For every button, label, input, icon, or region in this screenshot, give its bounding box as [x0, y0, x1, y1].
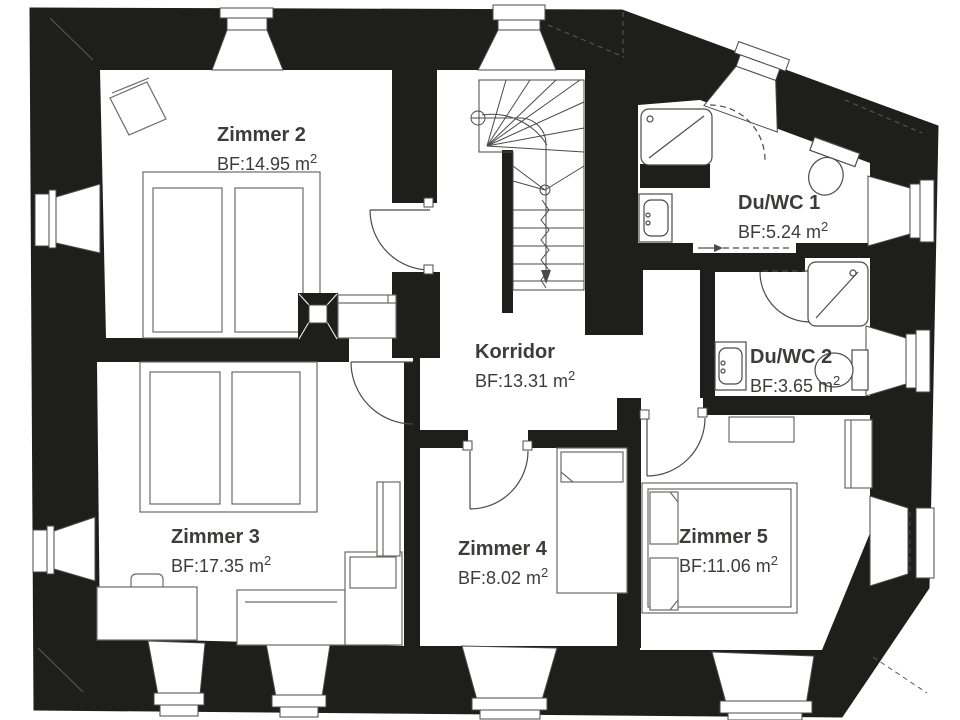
- shower-duwc2: [808, 262, 868, 326]
- window-bottom-2: [266, 643, 330, 717]
- room-name-zimmer5: Zimmer 5: [679, 526, 778, 549]
- room-area-duwc1: BF:5.24 m2: [738, 220, 828, 243]
- corner-line-bottom-right: [873, 657, 927, 693]
- room-label-zimmer2: Zimmer 2 BF:14.95 m2: [217, 124, 317, 175]
- shower-duwc1: [641, 109, 712, 165]
- room-area-zimmer2: BF:14.95 m2: [217, 152, 317, 175]
- floor-korridor-finger: [643, 270, 700, 412]
- floorplan-canvas: Zimmer 2 BF:14.95 m2 Du/WC 1 BF:5.24 m2 …: [0, 0, 960, 720]
- stair-spine-wall: [502, 150, 513, 313]
- room-area-zimmer4: BF:8.02 m2: [458, 566, 548, 589]
- window-bottom-4: [712, 652, 814, 720]
- sink-duwc2: [715, 342, 746, 390]
- room-name-duwc1: Du/WC 1: [738, 192, 828, 215]
- room-name-duwc2: Du/WC 2: [750, 346, 840, 369]
- window-right-3: [870, 496, 934, 586]
- window-right-1: [868, 176, 934, 246]
- sink-duwc1: [639, 194, 672, 242]
- chimney: [298, 293, 338, 340]
- window-bottom-1: [148, 641, 205, 716]
- window-bottom-3: [462, 646, 557, 719]
- room-name-zimmer3: Zimmer 3: [171, 526, 271, 549]
- wall-korridor-west: [392, 272, 440, 358]
- room-area-zimmer5: BF:11.06 m2: [679, 554, 778, 577]
- shower-step-duwc1: [640, 164, 710, 188]
- room-label-duwc2: Du/WC 2 BF:3.65 m2: [750, 346, 840, 397]
- room-area-duwc2: BF:3.65 m2: [750, 374, 840, 397]
- window-right-2: [866, 326, 930, 396]
- door-gap-zimmer4: [468, 430, 528, 448]
- window-left-1: [35, 184, 100, 253]
- room-area-zimmer3: BF:17.35 m2: [171, 554, 271, 577]
- room-label-zimmer4: Zimmer 4 BF:8.02 m2: [458, 538, 548, 589]
- dresser-zimmer5: [729, 417, 794, 442]
- cabinet-zimmer5: [845, 420, 872, 488]
- radiator-zimmer3: [377, 482, 400, 556]
- room-name-zimmer4: Zimmer 4: [458, 538, 548, 561]
- room-label-zimmer5: Zimmer 5 BF:11.06 m2: [679, 526, 778, 577]
- room-label-korridor: Korridor BF:13.31 m2: [475, 341, 575, 392]
- room-name-korridor: Korridor: [475, 341, 575, 364]
- bed-double-zimmer2: [143, 172, 320, 338]
- bed-double-zimmer3: [140, 362, 317, 512]
- room-label-zimmer3: Zimmer 3 BF:17.35 m2: [171, 526, 271, 577]
- cabinet-beside-chimney: [338, 295, 396, 338]
- bed-single-zimmer4: [557, 448, 627, 593]
- room-name-zimmer2: Zimmer 2: [217, 124, 317, 147]
- room-label-duwc1: Du/WC 1 BF:5.24 m2: [738, 192, 828, 243]
- room-area-korridor: BF:13.31 m2: [475, 369, 575, 392]
- desk-zimmer3: [97, 587, 197, 640]
